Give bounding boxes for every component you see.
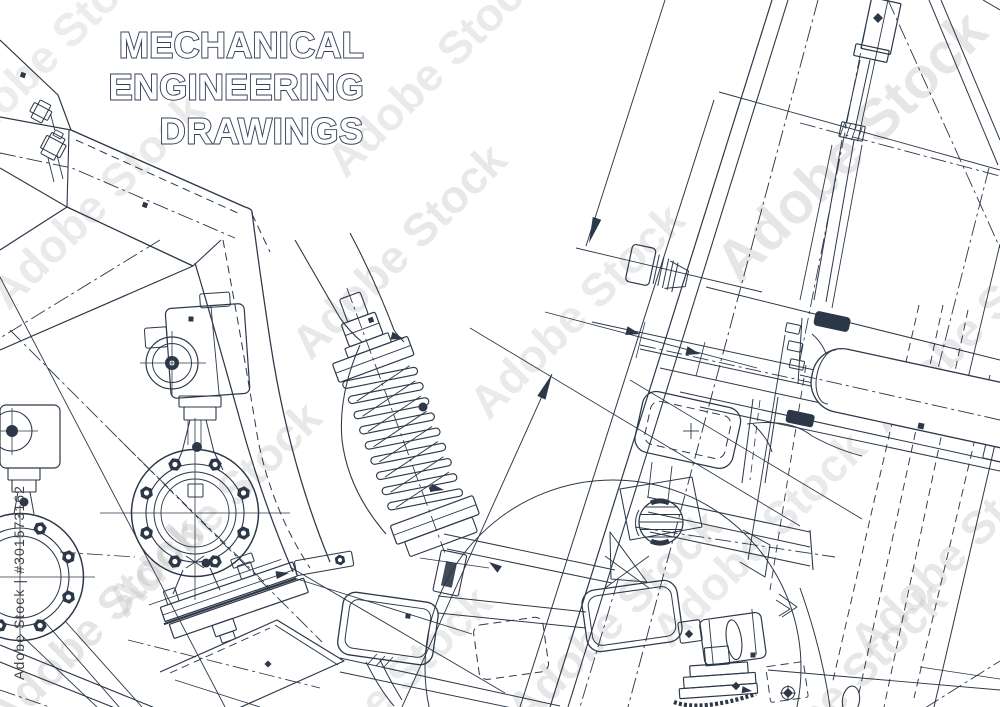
svg-text:Adobe Stock: Adobe Stock: [0, 506, 212, 707]
svg-text:DRAWINGS: DRAWINGS: [160, 111, 364, 152]
svg-text:Adobe Stock: Adobe Stock: [459, 193, 695, 429]
svg-text:MECHANICAL: MECHANICAL: [119, 25, 364, 66]
svg-text:ENGINEERING: ENGINEERING: [109, 67, 364, 108]
svg-text:Adobe Stock: Adobe Stock: [721, 573, 957, 707]
svg-text:Adobe Stock: Adobe Stock: [281, 133, 517, 369]
svg-text:Adobe Stock: Adobe Stock: [703, 0, 1000, 295]
svg-text:Adobe Stock | #301573162: Adobe Stock | #301573162: [11, 485, 27, 680]
